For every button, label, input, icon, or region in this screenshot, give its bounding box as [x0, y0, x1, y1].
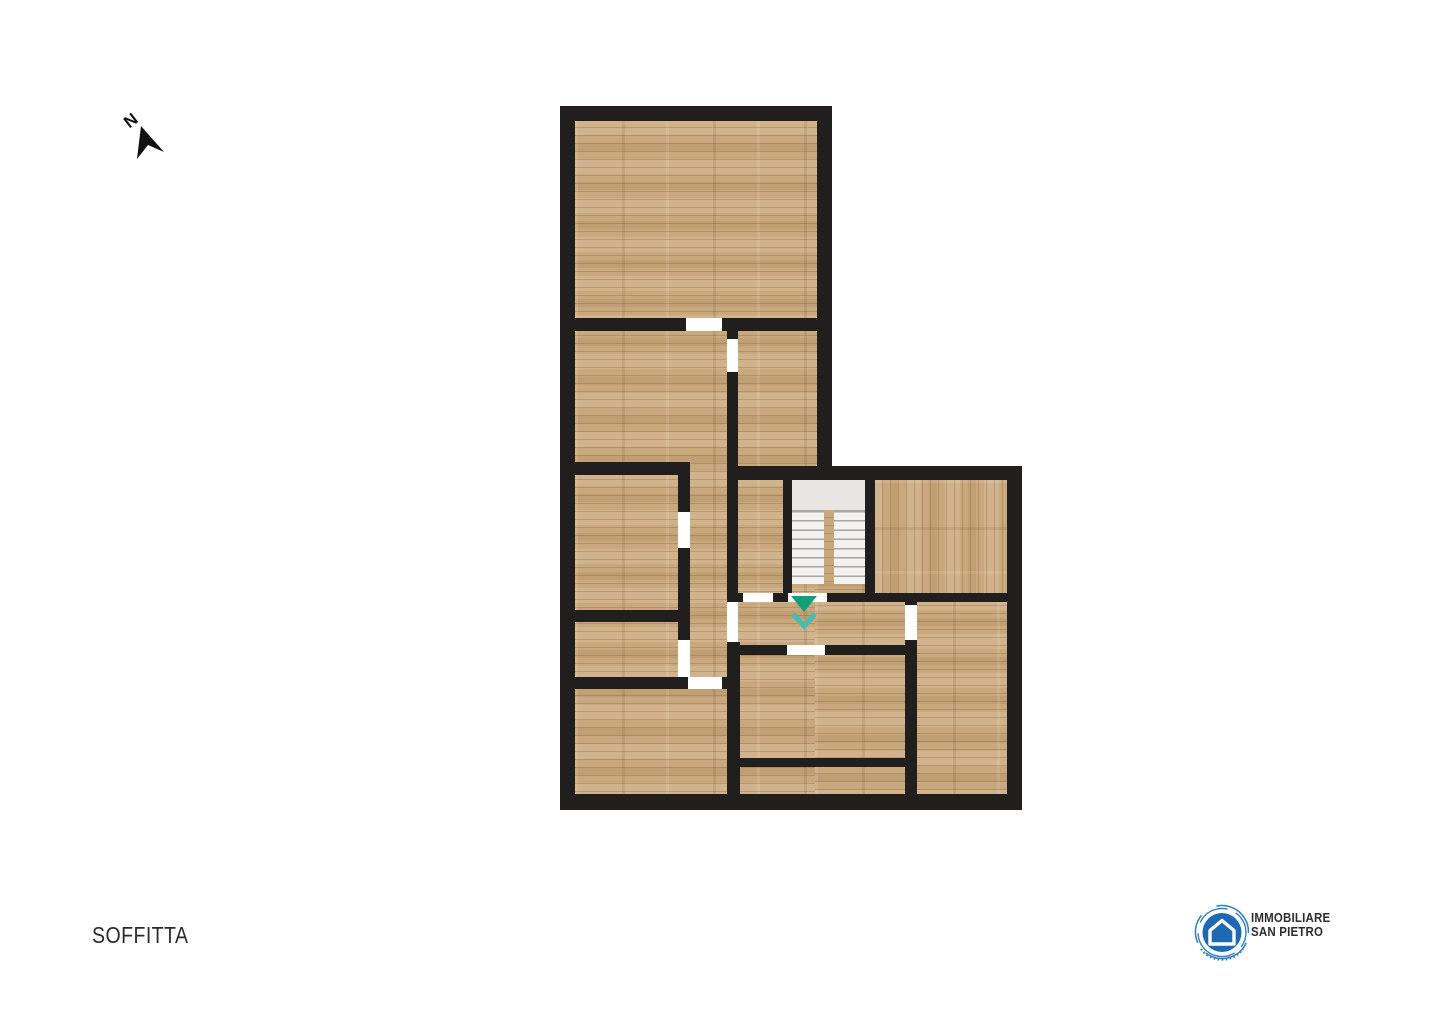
wall	[575, 610, 678, 622]
stair-divider	[824, 510, 834, 583]
wall	[773, 593, 788, 602]
wall	[727, 372, 738, 602]
stairwell-wall	[865, 480, 875, 593]
wall	[575, 318, 686, 331]
room-floor	[575, 120, 822, 796]
floor-plan	[0, 0, 1440, 1018]
door-opening	[727, 339, 738, 372]
wall	[560, 794, 1022, 810]
door-opening	[905, 605, 917, 640]
logo-text: IMMOBILIARE SAN PIETRO	[1251, 911, 1330, 939]
logo-house-icon	[1193, 902, 1251, 962]
door-opening	[678, 640, 690, 677]
page: N	[0, 0, 1440, 1018]
agency-logo: IMMOBILIARE SAN PIETRO	[1193, 902, 1413, 962]
door-opening	[787, 645, 825, 655]
door-opening	[686, 318, 722, 331]
logo-name-line1: IMMOBILIARE	[1251, 911, 1330, 925]
wall	[678, 548, 690, 640]
wall	[575, 677, 688, 689]
stair-flight-right	[834, 510, 865, 584]
wall	[560, 106, 832, 121]
wall	[827, 593, 1007, 602]
stairs-down-arrow-icon	[789, 594, 819, 632]
wall	[678, 462, 690, 512]
wall	[727, 593, 743, 602]
stair-flight-left	[792, 510, 824, 584]
wall	[905, 593, 917, 605]
wall	[727, 318, 738, 339]
wall	[1007, 466, 1022, 810]
door-opening	[688, 677, 722, 689]
wall	[560, 106, 575, 810]
wall	[740, 758, 905, 767]
door-opening	[743, 593, 773, 602]
wall	[575, 462, 686, 475]
north-indicator: N	[112, 103, 186, 177]
wall	[740, 645, 787, 655]
stairwell-wall	[783, 480, 792, 593]
wall	[825, 645, 905, 655]
door-opening	[727, 602, 738, 642]
wall	[905, 640, 917, 794]
wall	[727, 642, 740, 794]
floor-label: SOFFITTA	[92, 922, 188, 949]
wall	[727, 466, 1022, 480]
room-floor	[867, 480, 1007, 595]
logo-name-line2: SAN PIETRO	[1251, 925, 1330, 939]
wall	[817, 106, 832, 480]
stair-landing	[792, 480, 865, 510]
north-arrow-icon	[112, 103, 186, 177]
door-opening	[678, 512, 690, 548]
wall	[722, 318, 832, 331]
